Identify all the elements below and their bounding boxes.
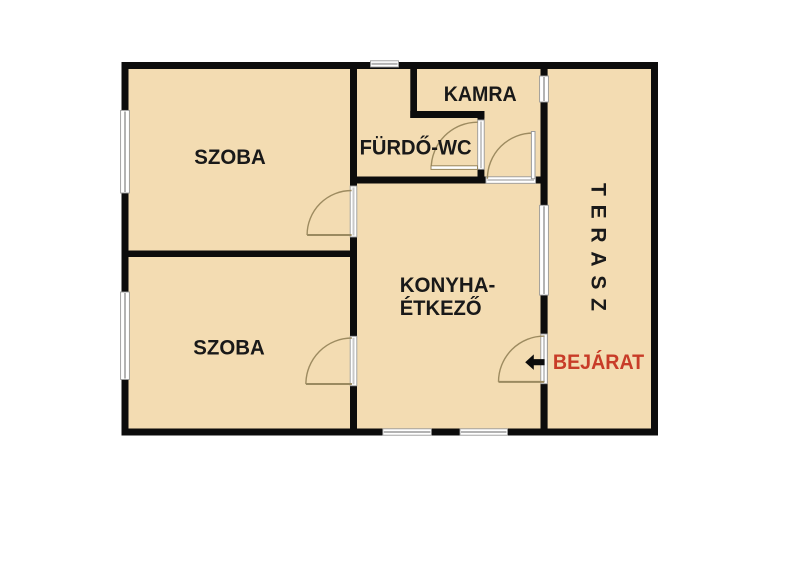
- svg-text:FÜRDŐ-WC: FÜRDŐ-WC: [360, 136, 472, 159]
- svg-text:KAMRA: KAMRA: [444, 83, 517, 106]
- svg-text:SZOBA: SZOBA: [194, 146, 266, 169]
- svg-text:SZOBA: SZOBA: [193, 336, 265, 359]
- svg-text:ÉTKEZŐ: ÉTKEZŐ: [400, 297, 482, 320]
- svg-text:KONYHA-: KONYHA-: [400, 274, 496, 297]
- svg-text:BEJÁRAT: BEJÁRAT: [553, 351, 644, 374]
